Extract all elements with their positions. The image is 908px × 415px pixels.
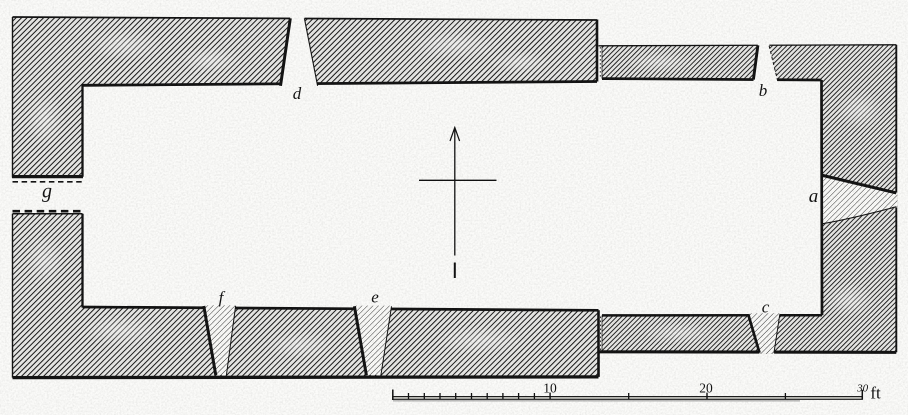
svg-text:30: 30 [856,383,869,395]
svg-text:20: 20 [699,380,713,395]
svg-text:ft: ft [870,383,881,402]
svg-text:10: 10 [543,380,557,395]
